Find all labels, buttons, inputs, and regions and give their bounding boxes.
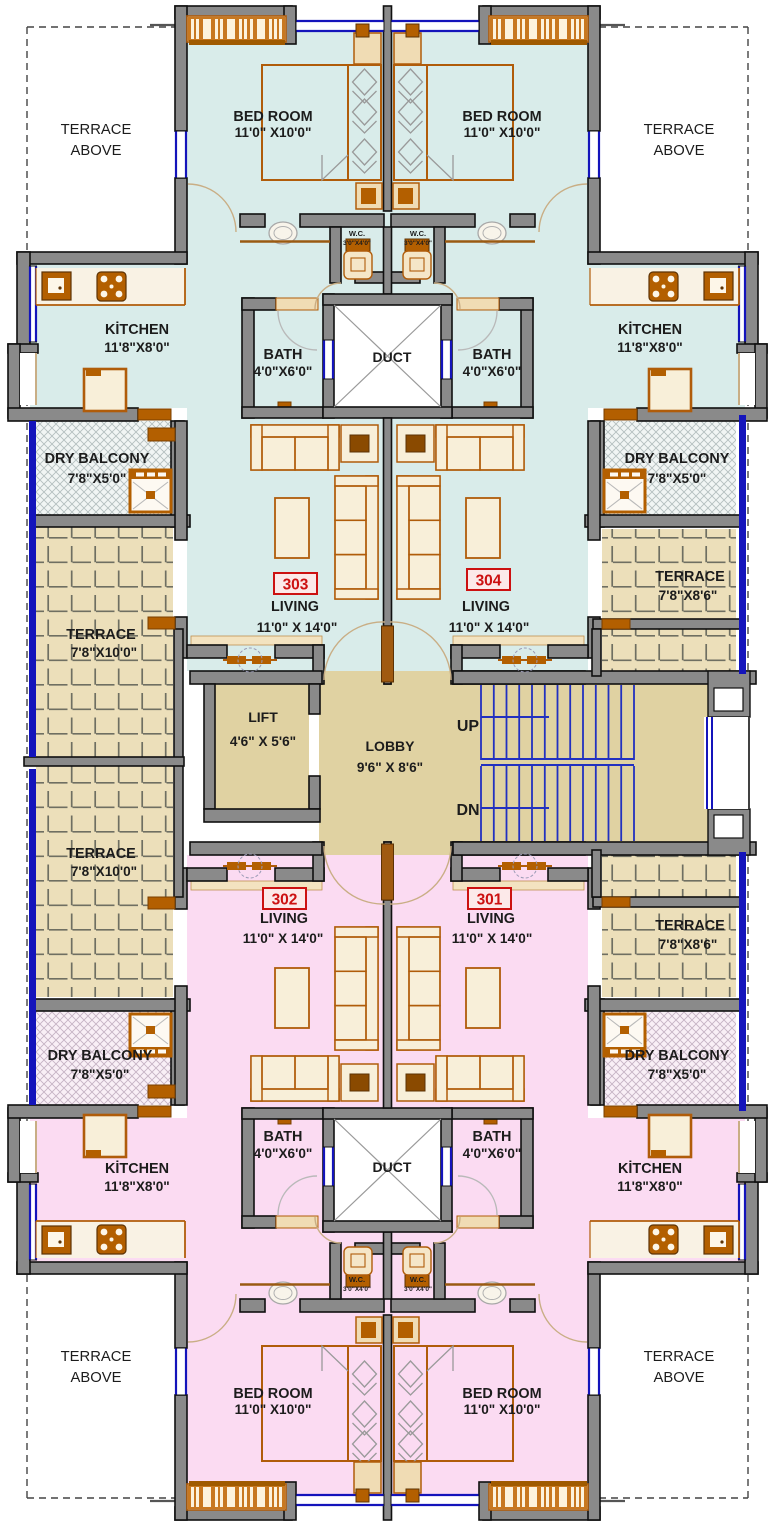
svg-text:4'0"X6'0": 4'0"X6'0" [463,1146,522,1161]
svg-text:BED ROOM: BED ROOM [233,1386,312,1402]
svg-text:LIVING: LIVING [260,911,308,927]
svg-text:KİTCHEN: KİTCHEN [105,321,169,338]
svg-text:TERRACE: TERRACE [655,918,725,934]
svg-text:W.C.: W.C. [410,1275,426,1284]
svg-text:ABOVE: ABOVE [654,143,705,159]
svg-text:W.C.: W.C. [349,1275,365,1284]
svg-text:301: 301 [477,892,503,909]
svg-text:11'0" X 14'0": 11'0" X 14'0" [243,931,324,946]
svg-text:TERRACE: TERRACE [644,122,715,138]
svg-text:11'0" X 14'0": 11'0" X 14'0" [449,620,530,635]
svg-text:W.C.: W.C. [410,229,426,238]
svg-text:TERRACE: TERRACE [61,1349,132,1365]
svg-text:DUCT: DUCT [373,349,412,365]
svg-text:KİTCHEN: KİTCHEN [618,1160,682,1177]
svg-text:7'8"X5'0": 7'8"X5'0" [71,1067,130,1082]
svg-text:7'8"X5'0": 7'8"X5'0" [68,471,127,486]
svg-text:302: 302 [272,892,298,909]
svg-text:303: 303 [283,577,309,594]
svg-text:LIFT: LIFT [248,709,278,725]
svg-text:TERRACE: TERRACE [655,569,725,585]
svg-text:BATH: BATH [264,347,303,363]
svg-text:11'0" X10'0": 11'0" X10'0" [235,125,312,140]
svg-text:TERRACE: TERRACE [644,1349,715,1365]
svg-text:11'0" X 14'0": 11'0" X 14'0" [257,620,338,635]
svg-text:4'6" X 5'6": 4'6" X 5'6" [230,734,296,749]
svg-text:ABOVE: ABOVE [71,143,122,159]
svg-text:LIVING: LIVING [462,599,510,615]
svg-text:TERRACE: TERRACE [61,122,132,138]
svg-text:W.C.: W.C. [349,229,365,238]
svg-text:ABOVE: ABOVE [654,1370,705,1386]
svg-text:3'0"X4'0": 3'0"X4'0" [404,240,432,247]
svg-text:TERRACE: TERRACE [66,627,136,643]
svg-text:7'8"X10'0": 7'8"X10'0" [71,864,137,879]
svg-text:4'0"X6'0": 4'0"X6'0" [254,364,313,379]
svg-text:KİTCHEN: KİTCHEN [618,321,682,338]
svg-text:LOBBY: LOBBY [366,738,416,754]
svg-text:DN: DN [456,802,479,819]
svg-text:7'8"X5'0": 7'8"X5'0" [648,1067,707,1082]
svg-text:11'0" X 14'0": 11'0" X 14'0" [452,931,533,946]
svg-text:DRY BALCONY: DRY BALCONY [45,451,150,467]
svg-text:DRY BALCONY: DRY BALCONY [625,1048,730,1064]
svg-text:LIVING: LIVING [271,599,319,615]
svg-text:11'0" X10'0": 11'0" X10'0" [464,125,541,140]
svg-text:KİTCHEN: KİTCHEN [105,1160,169,1177]
svg-text:BED ROOM: BED ROOM [233,109,312,125]
svg-text:9'6" X 8'6": 9'6" X 8'6" [357,760,423,775]
svg-text:11'0" X10'0": 11'0" X10'0" [235,1402,312,1417]
svg-text:4'0"X6'0": 4'0"X6'0" [254,1146,313,1161]
svg-text:3'0"X4'0": 3'0"X4'0" [343,240,371,247]
svg-text:BED ROOM: BED ROOM [462,1386,541,1402]
svg-text:3'0"X4'0": 3'0"X4'0" [404,1286,432,1293]
svg-text:7'8"X8'6": 7'8"X8'6" [659,588,718,603]
svg-text:7'8"X5'0": 7'8"X5'0" [648,471,707,486]
svg-text:11'8"X8'0": 11'8"X8'0" [104,1179,169,1194]
svg-text:11'8"X8'0": 11'8"X8'0" [104,340,169,355]
svg-text:304: 304 [476,573,502,590]
svg-text:7'8"X8'6": 7'8"X8'6" [659,937,718,952]
svg-text:3'0"X4'0": 3'0"X4'0" [343,1286,371,1293]
svg-text:DUCT: DUCT [373,1159,412,1175]
svg-text:ABOVE: ABOVE [71,1370,122,1386]
svg-text:11'0" X10'0": 11'0" X10'0" [464,1402,541,1417]
svg-text:TERRACE: TERRACE [66,846,136,862]
svg-text:DRY BALCONY: DRY BALCONY [48,1048,153,1064]
svg-text:DRY BALCONY: DRY BALCONY [625,451,730,467]
svg-text:11'8"X8'0": 11'8"X8'0" [617,340,682,355]
svg-text:BATH: BATH [473,347,512,363]
svg-text:BATH: BATH [264,1129,303,1145]
svg-text:11'8"X8'0": 11'8"X8'0" [617,1179,682,1194]
svg-text:LIVING: LIVING [467,911,515,927]
svg-text:BED ROOM: BED ROOM [462,109,541,125]
svg-text:BATH: BATH [473,1129,512,1145]
svg-text:7'8"X10'0": 7'8"X10'0" [71,645,137,660]
svg-text:4'0"X6'0": 4'0"X6'0" [463,364,522,379]
svg-text:UP: UP [457,718,480,735]
